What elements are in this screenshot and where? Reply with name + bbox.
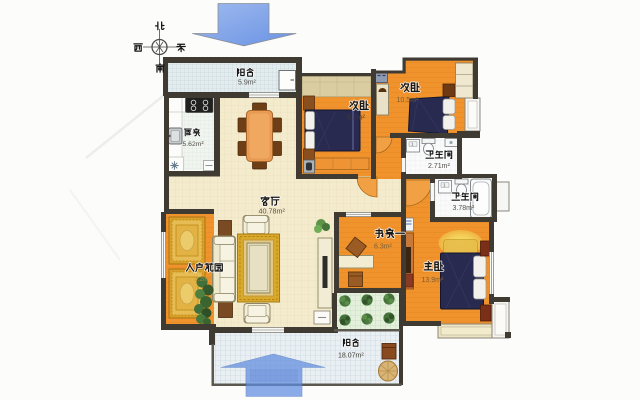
svg-text:5.9m²: 5.9m²: [238, 80, 257, 87]
svg-text:10.5m²: 10.5m²: [397, 97, 419, 104]
svg-text:3.78m²: 3.78m²: [453, 205, 475, 212]
svg-text:6.3m²: 6.3m²: [374, 244, 393, 251]
svg-text:13.9m²: 13.9m²: [422, 277, 444, 284]
svg-text:40.78m²: 40.78m²: [259, 207, 286, 216]
svg-text:5.62m²: 5.62m²: [183, 141, 205, 148]
svg-text:2.71m²: 2.71m²: [428, 163, 450, 170]
svg-text:7.2m²: 7.2m²: [194, 276, 211, 283]
svg-text:18.07m²: 18.07m²: [338, 353, 364, 360]
svg-text:8.2m²: 8.2m²: [347, 115, 366, 122]
